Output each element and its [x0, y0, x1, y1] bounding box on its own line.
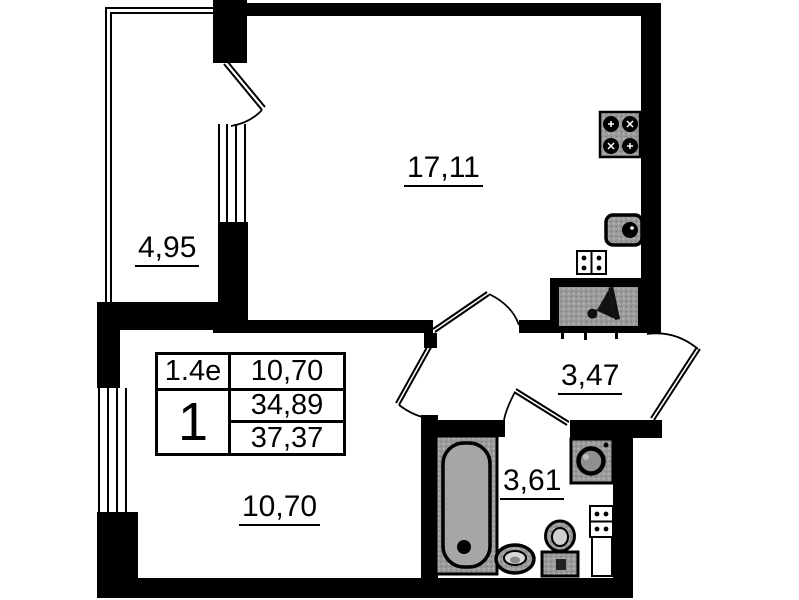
living-area-value: 10,70: [230, 354, 345, 390]
entrance-door: [647, 333, 700, 420]
floor-plan: 17,11 4,95 3,47 10,70 3,61 1.4e 10,70 1 …: [0, 0, 799, 600]
washbasin: [496, 545, 534, 573]
area-label-balcony: 4,95: [135, 233, 199, 267]
wall-hall-bottom-left: [421, 420, 505, 437]
area-label-hallway: 3,47: [558, 361, 622, 395]
area-label-bathroom: 3,61: [500, 466, 564, 500]
vent-ticks: [561, 333, 618, 340]
bedroom-window: [99, 388, 126, 512]
bathtub: [436, 436, 497, 574]
wall-top: [213, 3, 661, 16]
room-count: 1: [157, 390, 230, 455]
wall-bathroom-right: [613, 420, 633, 598]
wall-living-left: [218, 222, 248, 333]
wall-living-bottom-left: [213, 320, 433, 333]
floor-plan-drawing: [0, 0, 799, 600]
balcony-door: [224, 61, 265, 126]
washing-machine: [571, 439, 613, 483]
apartment-info-table: 1.4e 10,70 1 34,89 37,37: [155, 352, 346, 456]
wall-living-bottom-stub: [519, 320, 552, 333]
total-area-value: 37,37: [230, 422, 345, 455]
kitchen-sink: [606, 215, 642, 245]
utility-meter-box: [590, 506, 613, 576]
area-without-balcony-value: 34,89: [230, 390, 345, 422]
bedroom-door: [396, 340, 434, 418]
living-room-door: [433, 292, 519, 332]
wall-left-upper: [97, 302, 120, 388]
electric-meter-box: [577, 251, 606, 274]
stove: [600, 112, 640, 157]
balcony-window: [219, 124, 245, 222]
area-label-living-room: 17,11: [404, 153, 483, 187]
wall-bottom: [97, 578, 633, 598]
plan-code: 1.4e: [157, 354, 230, 390]
wall-top-left-pier: [213, 0, 247, 63]
toilet: [542, 521, 578, 576]
area-label-bedroom: 10,70: [239, 492, 320, 526]
utility-cabinet: [592, 537, 612, 576]
